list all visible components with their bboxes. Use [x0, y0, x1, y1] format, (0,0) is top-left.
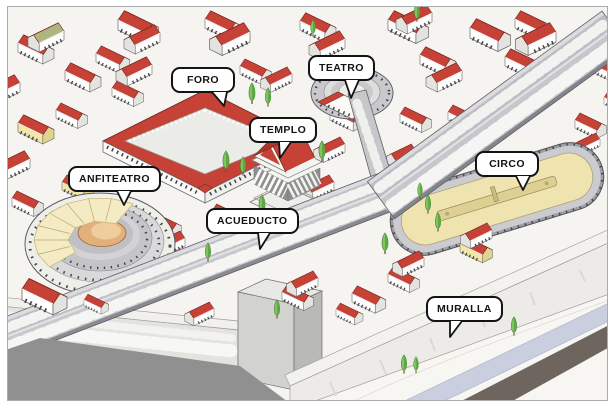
callout-anfiteatro: ANFITEATRO — [68, 166, 161, 192]
label-teatro: TEATRO — [308, 55, 375, 81]
label-circo: CIRCO — [475, 151, 539, 177]
label-anfiteatro: ANFITEATRO — [68, 166, 161, 192]
callout-tail — [209, 91, 231, 108]
callout-tail — [446, 320, 468, 339]
label-muralla: MURALLA — [426, 296, 503, 322]
callout-foro: FORO — [171, 67, 235, 93]
roman-city-map: FORO TEATRO TEMPLO ANFITEATRO ACUEDUCTO … — [0, 0, 615, 408]
callout-tail — [275, 141, 297, 160]
callout-acueducto: ACUEDUCTO — [206, 208, 299, 234]
label-acueducto: ACUEDUCTO — [206, 208, 299, 234]
callout-tail — [114, 190, 136, 207]
callout-tail — [342, 79, 364, 100]
callout-tail — [254, 232, 276, 251]
callout-teatro: TEATRO — [308, 55, 375, 81]
callout-templo: TEMPLO — [249, 117, 317, 143]
label-templo: TEMPLO — [249, 117, 317, 143]
callout-circo: CIRCO — [475, 151, 539, 177]
callout-muralla: MURALLA — [426, 296, 503, 322]
label-foro: FORO — [171, 67, 235, 93]
callout-tail — [513, 175, 535, 192]
